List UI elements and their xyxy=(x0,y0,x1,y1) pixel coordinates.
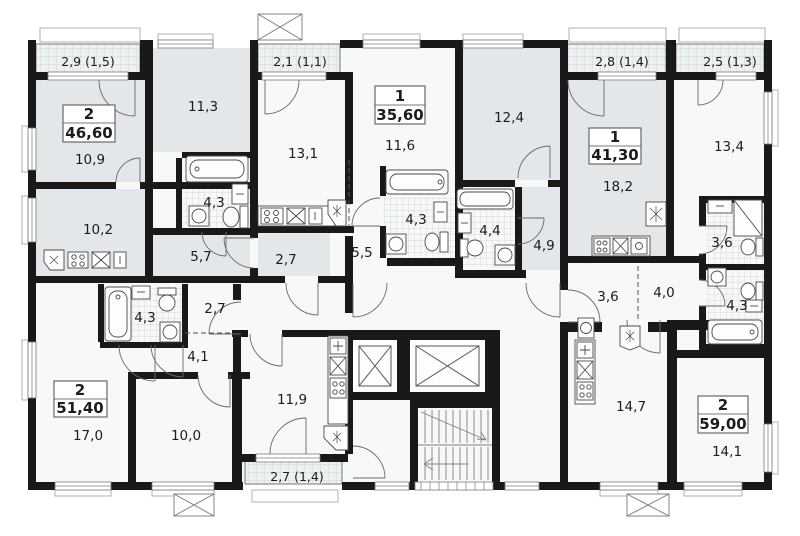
apartment-rooms-count: 2 xyxy=(84,105,94,123)
room-area-label: 13,1 xyxy=(288,146,318,162)
room-area-label: 3,6 xyxy=(711,235,732,251)
toilet-icon xyxy=(425,232,448,252)
sink-icon xyxy=(434,202,447,222)
room-area-label: 10,0 xyxy=(171,428,201,444)
room-area-label: 2,7 xyxy=(275,252,296,268)
apartment-rooms-count: 1 xyxy=(610,128,620,146)
floor-plan-drawing: 2,9 (1,5) 2,1 (1,1) 2,8 (1,4) 2,5 (1,3) … xyxy=(0,0,800,536)
apartment-total-area: 59,00 xyxy=(699,415,746,433)
washer-icon xyxy=(578,318,594,338)
room-area-label: 4,3 xyxy=(134,310,155,326)
bathtub-icon xyxy=(708,320,762,344)
apartment-box-35-60: 1 35,60 xyxy=(375,86,425,124)
balcony-area-label: 2,7 (1,4) xyxy=(270,469,324,484)
room-area-label: 4,3 xyxy=(203,195,224,211)
floor-plan: 2,9 (1,5) 2,1 (1,1) 2,8 (1,4) 2,5 (1,3) … xyxy=(0,0,800,536)
kitchen-counter xyxy=(44,250,126,270)
room-area-label: 2,7 xyxy=(204,301,225,317)
room-area-label: 12,4 xyxy=(494,110,524,126)
toilet-icon xyxy=(741,238,763,256)
room-area-label: 14,7 xyxy=(616,399,646,415)
room-area-label: 4,4 xyxy=(479,223,500,239)
room-area-label: 11,6 xyxy=(385,138,415,154)
apartment-box-59-00: 2 59,00 xyxy=(698,396,748,433)
vent-shaft-bottom-right xyxy=(627,494,669,516)
vent-shaft-top xyxy=(258,14,302,40)
room-area-label: 11,9 xyxy=(277,392,307,408)
room-area-label: 17,0 xyxy=(73,428,103,444)
room-area-label: 18,2 xyxy=(603,179,633,195)
room-area-label: 10,9 xyxy=(75,152,105,168)
washer-icon xyxy=(160,322,180,342)
kitchen-counter xyxy=(575,340,595,404)
room-area-label: 14,1 xyxy=(712,444,742,460)
washer-icon xyxy=(495,245,515,265)
apartment-rooms-count: 2 xyxy=(718,396,728,414)
room-area-label: 5,5 xyxy=(351,245,372,261)
apartment-box-51-40: 2 51,40 xyxy=(54,381,107,417)
balcony-area-label: 2,9 (1,5) xyxy=(61,54,115,69)
balcony-area-label: 2,1 (1,1) xyxy=(273,54,327,69)
washer-icon xyxy=(708,268,726,286)
room-area-label: 4,3 xyxy=(726,298,747,314)
sink-icon xyxy=(746,300,762,312)
apartment-rooms-count: 1 xyxy=(395,87,405,105)
toilet-icon xyxy=(460,239,483,257)
room-area-label: 4,1 xyxy=(187,349,208,365)
room-area-label: 4,3 xyxy=(405,212,426,228)
room-area-label: 4,9 xyxy=(533,238,554,254)
sink-icon xyxy=(458,213,471,233)
room-area-label: 10,2 xyxy=(83,222,113,238)
apartment-rooms-count: 2 xyxy=(75,381,85,399)
vent-shaft-bottom-left xyxy=(174,494,214,516)
toilet-icon xyxy=(158,288,176,311)
sink-icon xyxy=(132,286,150,299)
balcony-area-label: 2,8 (1,4) xyxy=(595,54,649,69)
sink-icon xyxy=(232,184,248,204)
room-area-label: 13,4 xyxy=(714,139,744,155)
apartment-total-area: 41,30 xyxy=(591,146,638,164)
room-area-label: 3,6 xyxy=(597,289,618,305)
kitchen-counter xyxy=(324,336,348,450)
apartment-total-area: 51,40 xyxy=(56,399,103,417)
room-area-label: 4,0 xyxy=(653,285,674,301)
balcony-area-label: 2,5 (1,3) xyxy=(703,54,757,69)
bathtub-icon xyxy=(105,287,131,341)
apartment-box-41-30: 1 41,30 xyxy=(589,128,641,164)
apartment-box-46-60: 2 46,60 xyxy=(63,105,115,142)
apartment-total-area: 35,60 xyxy=(376,106,423,124)
bathtub-icon xyxy=(386,170,448,194)
room-area-label: 5,7 xyxy=(190,249,211,265)
vent-icon xyxy=(620,326,640,350)
apartment-total-area: 46,60 xyxy=(65,124,112,142)
washer-icon xyxy=(386,234,406,254)
bathtub-icon xyxy=(457,189,513,209)
sink-icon xyxy=(708,200,732,213)
bathtub-icon xyxy=(186,156,248,182)
toilet-icon xyxy=(223,206,248,228)
elevators xyxy=(353,340,485,392)
shower-icon xyxy=(734,200,762,236)
room-area-label: 11,3 xyxy=(188,99,218,115)
